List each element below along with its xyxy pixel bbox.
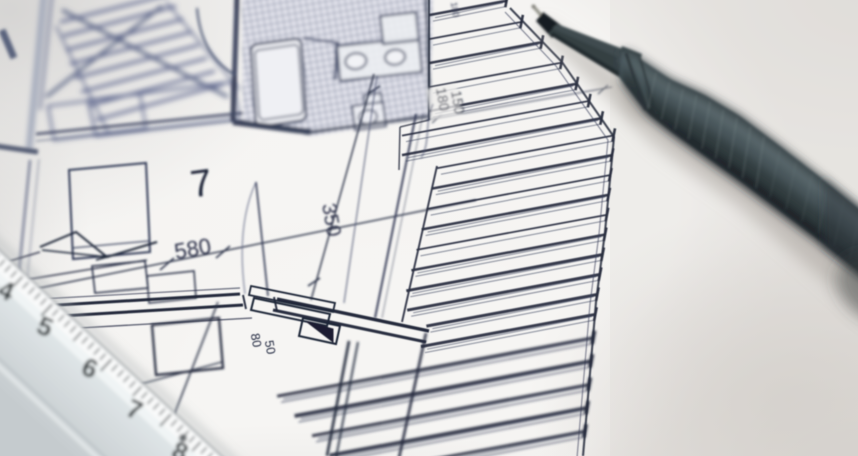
- svg-text:50: 50: [262, 339, 278, 355]
- svg-text:80: 80: [248, 332, 264, 348]
